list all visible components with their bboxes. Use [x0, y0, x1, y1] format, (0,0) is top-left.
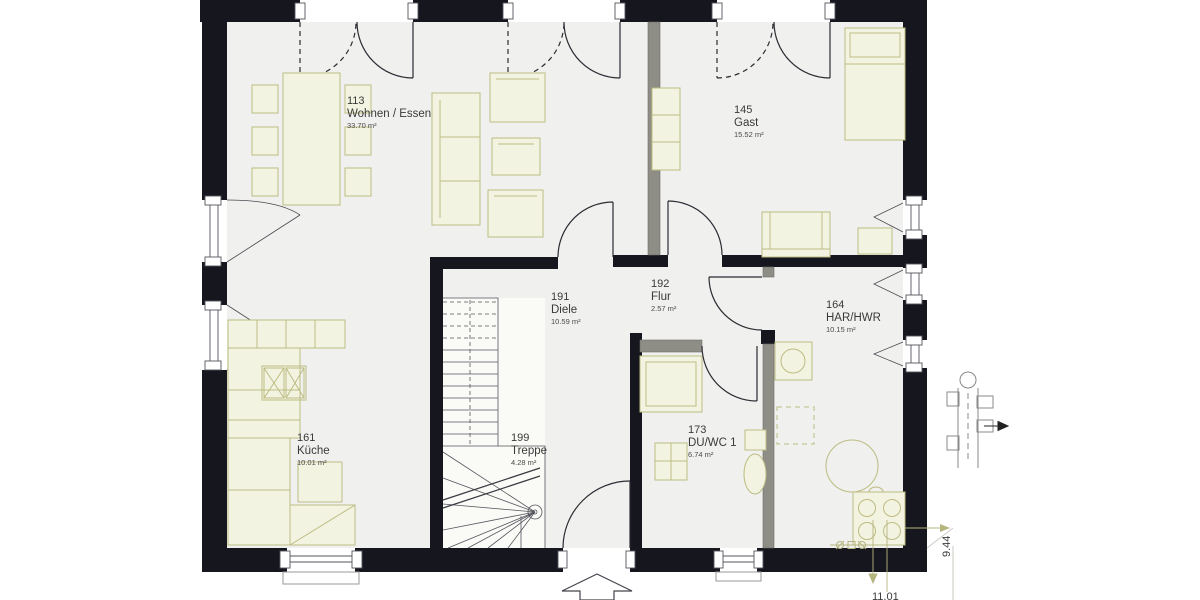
- dining-table-set: [252, 73, 371, 205]
- dimension-right: 9.44: [941, 536, 953, 557]
- utility-sink-unit: [853, 492, 905, 545]
- stairwell-floor: [443, 298, 545, 548]
- window-sills: [283, 572, 761, 584]
- dimension-bottom: 11.01: [872, 591, 899, 600]
- guest-bed: [845, 28, 905, 140]
- washbasin: [655, 443, 687, 480]
- entrance-arrow-icon: [562, 574, 632, 600]
- floor-plan-canvas: 113 Wohnen / Essen 33.70 m² 145 Gast 15.…: [0, 0, 1200, 600]
- floor-plan-drawing: [0, 0, 1200, 600]
- washing-machine: [775, 342, 812, 380]
- orientation-marker-icon: [947, 372, 1008, 468]
- toilet: [744, 430, 766, 494]
- guest-wardrobe: [652, 88, 680, 170]
- shower: [640, 356, 702, 412]
